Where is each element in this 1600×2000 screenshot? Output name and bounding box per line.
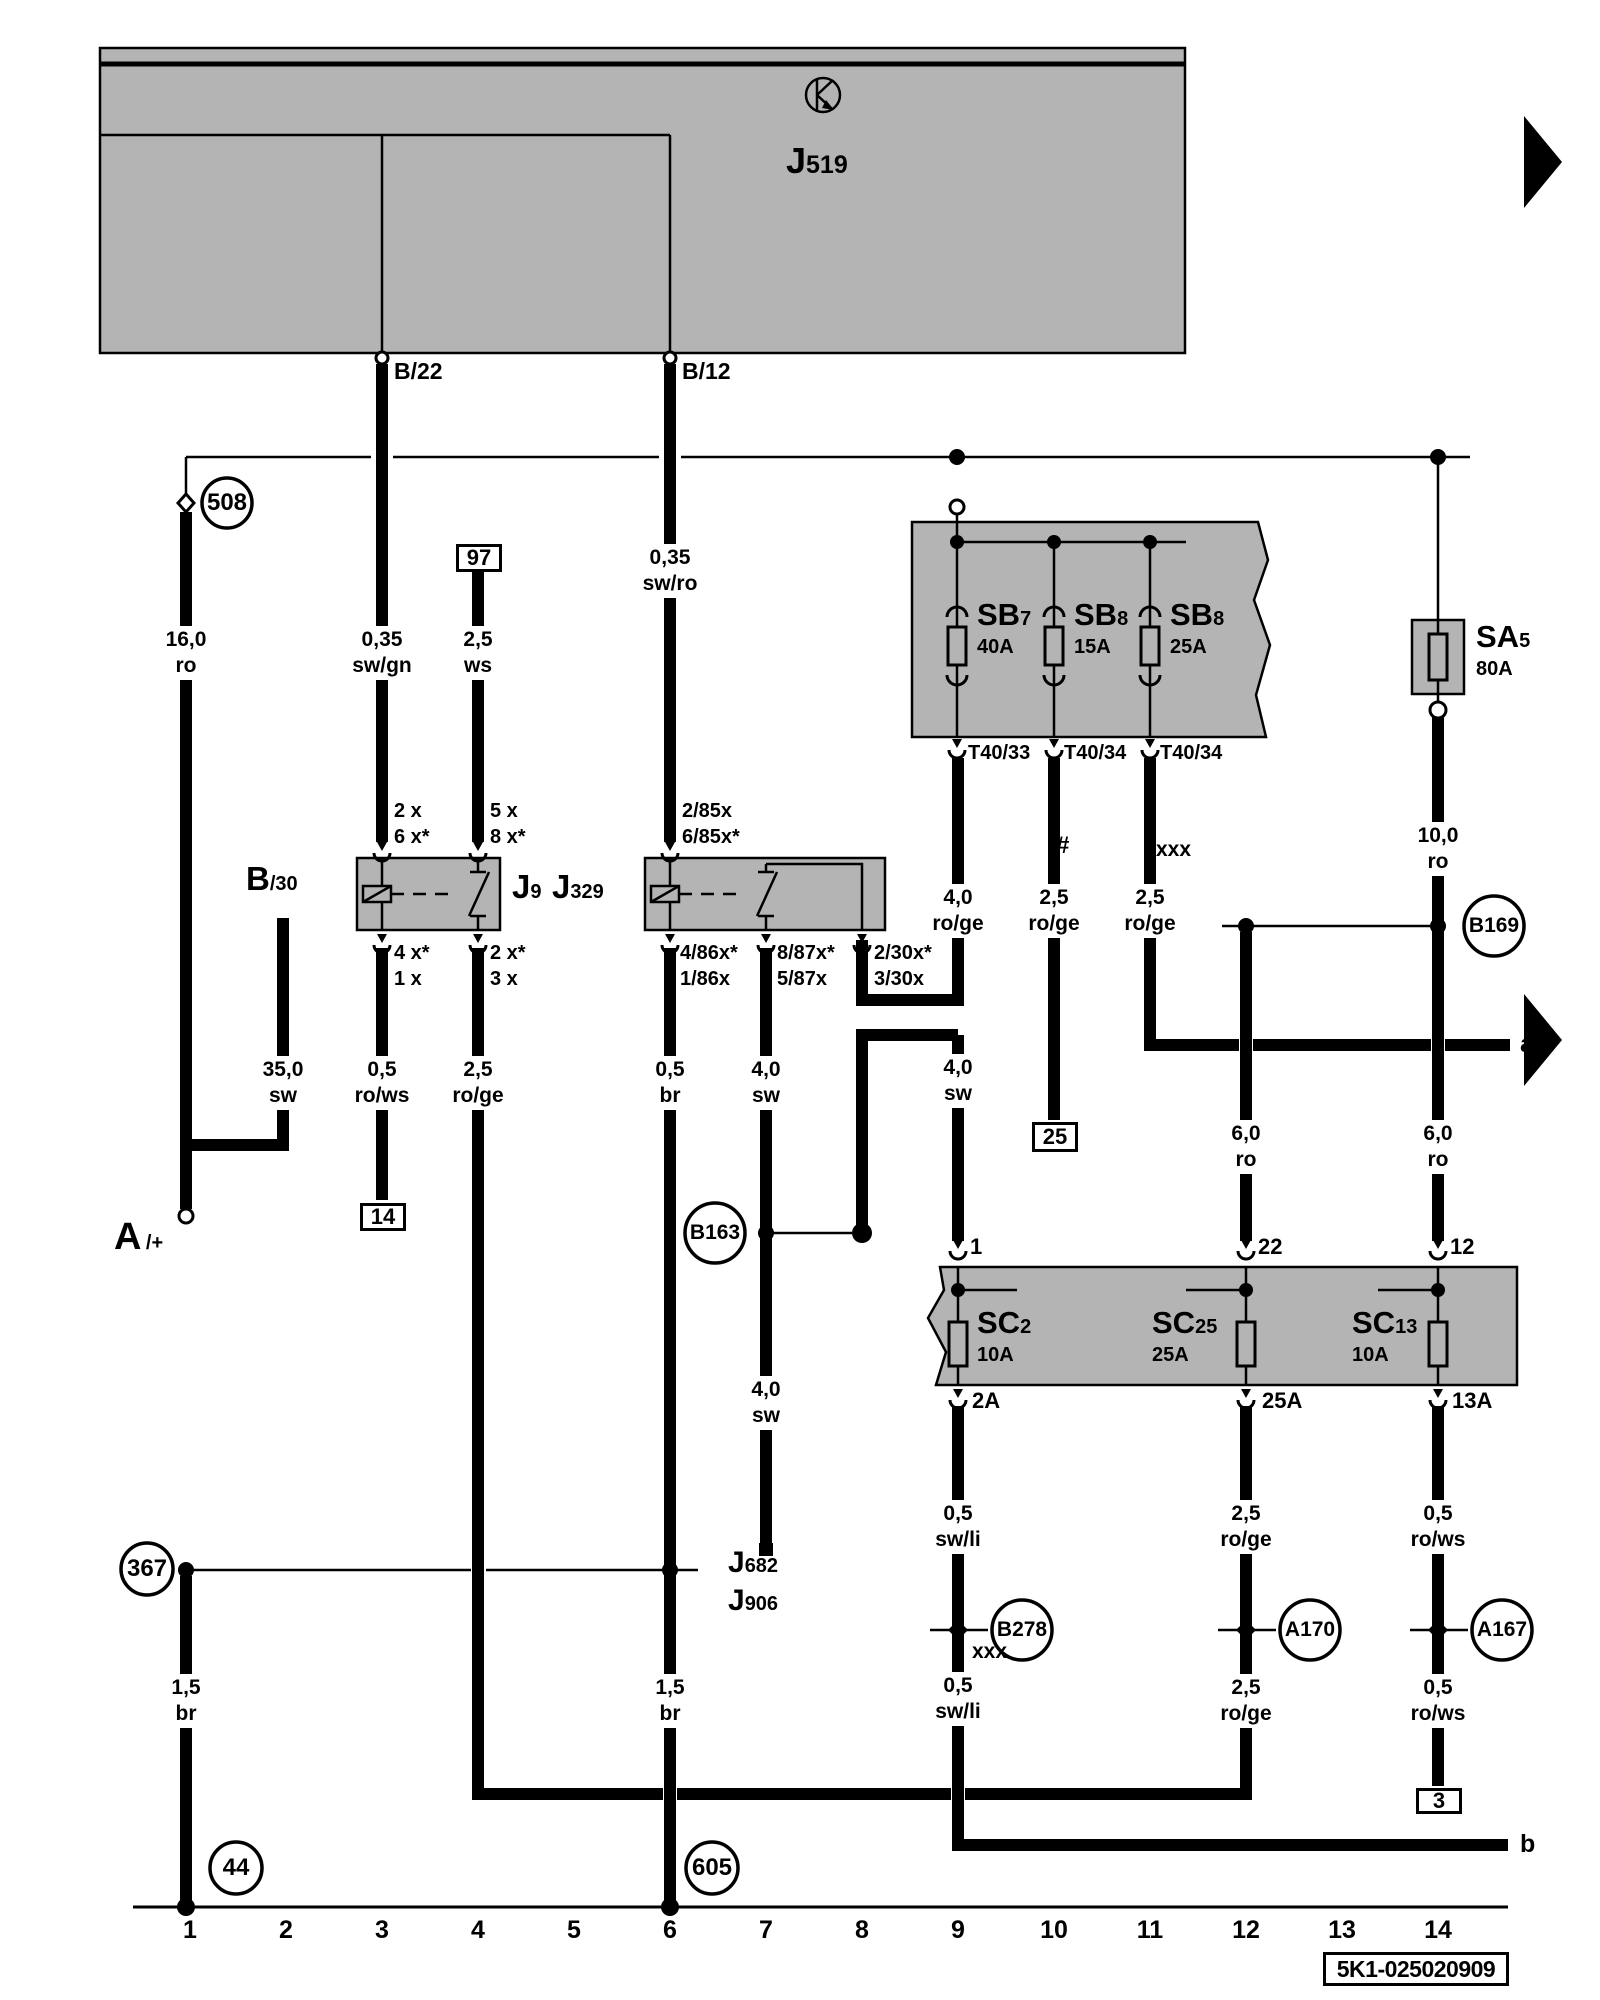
wire-label-05br: 0,5br (651, 1056, 688, 1110)
j329-pin-bot-1: 4/86x*1/86x (680, 940, 738, 992)
track-number-1: 1 (183, 1916, 197, 1945)
wire-label-15br-t1: 1,5br (167, 1674, 204, 1728)
track-number-11: 11 (1137, 1916, 1163, 1945)
wire-label-40sw-lower: 4,0sw (747, 1376, 784, 1430)
fuse-sc25-label: SC2525A (1152, 1308, 1217, 1366)
xxx-mark-upper: xxx (1156, 838, 1191, 862)
ground-44-label: 44 (223, 1854, 250, 1882)
pin-b12-label: B/12 (682, 358, 731, 385)
splice-a170-label: A170 (1285, 1618, 1335, 1642)
continuation-a-label: a (1520, 1030, 1534, 1059)
diagram-linework (0, 0, 1600, 2000)
j519-control-unit-box (100, 48, 1185, 353)
wire-label-25roge-t12d: 2,5ro/ge (1216, 1674, 1275, 1728)
track-number-4: 4 (471, 1916, 485, 1945)
wiring-diagram-page: J519 B/22 B/12 508 367 44 605 B163 B169 … (0, 0, 1600, 2000)
hash-mark: # (1056, 832, 1069, 860)
j9-relay-label: J9 (512, 868, 541, 906)
track-number-5: 5 (567, 1916, 581, 1945)
track-number-7: 7 (759, 1916, 773, 1945)
j9-pin-bot-left: 4 x*1 x (394, 940, 430, 992)
wire-label-40sw-t8: 4,0sw (939, 1054, 976, 1108)
track-number-3: 3 (375, 1916, 389, 1945)
splice-b278-label: B278 (997, 1618, 1047, 1642)
wire-label-05swli-lower: 0,5sw/li (931, 1672, 985, 1726)
battery-label: A /+ (114, 1216, 163, 1259)
sc-pin-22: 22 (1258, 1234, 1282, 1260)
j329-pin-bot-2: 8/87x*5/87x (777, 940, 835, 992)
t40-34b-label: T40/34 (1160, 742, 1222, 765)
wire-label-16ro: 16,0ro (162, 626, 211, 680)
part-number-box: 5K1-025020909 (1323, 1952, 1509, 1986)
j682-label: J682 (728, 1546, 778, 1580)
wire-label-035swgn: 0,35sw/gn (348, 626, 416, 680)
j329-relay-label: J329 (552, 868, 604, 906)
wire-track2-b30 (180, 918, 283, 1145)
sc-pin-1: 1 (970, 1234, 982, 1260)
thick-wires (180, 364, 1510, 1903)
splice-b163-label: B163 (690, 1221, 740, 1245)
fuse-sc2-label: SC210A (977, 1308, 1031, 1366)
wire-label-05rows-t14c: 0,5ro/ws (1407, 1500, 1470, 1554)
track-number-6: 6 (663, 1916, 677, 1945)
sc-pin-13a: 13A (1452, 1388, 1492, 1414)
splice-b169-label: B169 (1469, 914, 1519, 938)
track-number-13: 13 (1328, 1916, 1356, 1945)
wire-label-25roge-t12c: 2,5ro/ge (1216, 1500, 1275, 1554)
wire-label-05rows-t14d: 0,5ro/ws (1407, 1674, 1470, 1728)
ground-605-label: 605 (692, 1854, 732, 1882)
wire-label-15br-t6: 1,5br (651, 1674, 688, 1728)
track-number-10: 10 (1040, 1916, 1068, 1945)
fuse-sb7-label: SB740A (977, 600, 1031, 658)
pin-b22-label: B/22 (394, 358, 443, 385)
wire-label-60ro-t14: 6,0ro (1419, 1120, 1456, 1174)
j519-label: J519 (786, 140, 848, 182)
wire-label-05rows: 0,5ro/ws (351, 1056, 414, 1110)
j9-pin-top-right: 5 x8 x* (490, 798, 526, 850)
fuse-sb8a-label: SB815A (1074, 600, 1128, 658)
xxx-mark-lower: xxx (972, 1640, 1007, 1664)
ground-508-label: 508 (207, 489, 247, 517)
b30-terminal-label: B/30 (246, 860, 298, 898)
wire-label-40sw-t7: 4,0sw (747, 1056, 784, 1110)
terminal-box-25: 25 (1032, 1122, 1078, 1152)
wire-label-25roge-t10: 2,5ro/ge (1024, 884, 1083, 938)
j329-pin-top: 2/85x6/85x* (682, 798, 740, 850)
terminal-box-97: 97 (456, 544, 502, 572)
track-number-14: 14 (1424, 1916, 1452, 1945)
wire-label-25roge-t11: 2,5ro/ge (1120, 884, 1179, 938)
continuation-b-label: b (1520, 1830, 1535, 1859)
j9-pin-top-left: 2 x6 x* (394, 798, 430, 850)
ground-367-label: 367 (127, 1555, 167, 1583)
page-continuation-arrows (1524, 116, 1562, 1086)
track-number-12: 12 (1232, 1916, 1260, 1945)
fuse-sb8b-label: SB825A (1170, 600, 1224, 658)
wire-label-350sw: 35,0sw (259, 1056, 308, 1110)
j906-label: J906 (728, 1584, 778, 1618)
track-number-8: 8 (855, 1916, 869, 1945)
t40-34a-label: T40/34 (1064, 742, 1126, 765)
fuse-sa5-label: SA580A (1476, 622, 1530, 680)
wire-label-05swli-upper: 0,5sw/li (931, 1500, 985, 1554)
track-number-9: 9 (951, 1916, 965, 1945)
wire-label-035swro: 0,35sw/ro (639, 544, 702, 598)
wire-label-60ro-t12: 6,0ro (1227, 1120, 1264, 1174)
wire-label-40roge: 4,0ro/ge (928, 884, 987, 938)
sc-pin-12: 12 (1450, 1234, 1474, 1260)
wire-label-25roge-t4: 2,5ro/ge (448, 1056, 507, 1110)
sc-pin-2a: 2A (972, 1388, 1000, 1414)
label-circles (121, 478, 1532, 1894)
sc-pin-25a: 25A (1262, 1388, 1302, 1414)
splice-a167-label: A167 (1477, 1618, 1527, 1642)
fuse-sc13-label: SC1310A (1352, 1308, 1417, 1366)
j329-pin-bot-3: 2/30x*3/30x (874, 940, 932, 992)
j9-pin-bot-right: 2 x*3 x (490, 940, 526, 992)
terminal-box-14: 14 (360, 1203, 406, 1231)
wire-label-100ro: 10,0ro (1414, 822, 1463, 876)
track-number-2: 2 (279, 1916, 293, 1945)
terminal-box-3: 3 (1416, 1788, 1462, 1814)
t40-33-label: T40/33 (968, 742, 1030, 765)
wire-label-25ws: 2,5ws (459, 626, 496, 680)
